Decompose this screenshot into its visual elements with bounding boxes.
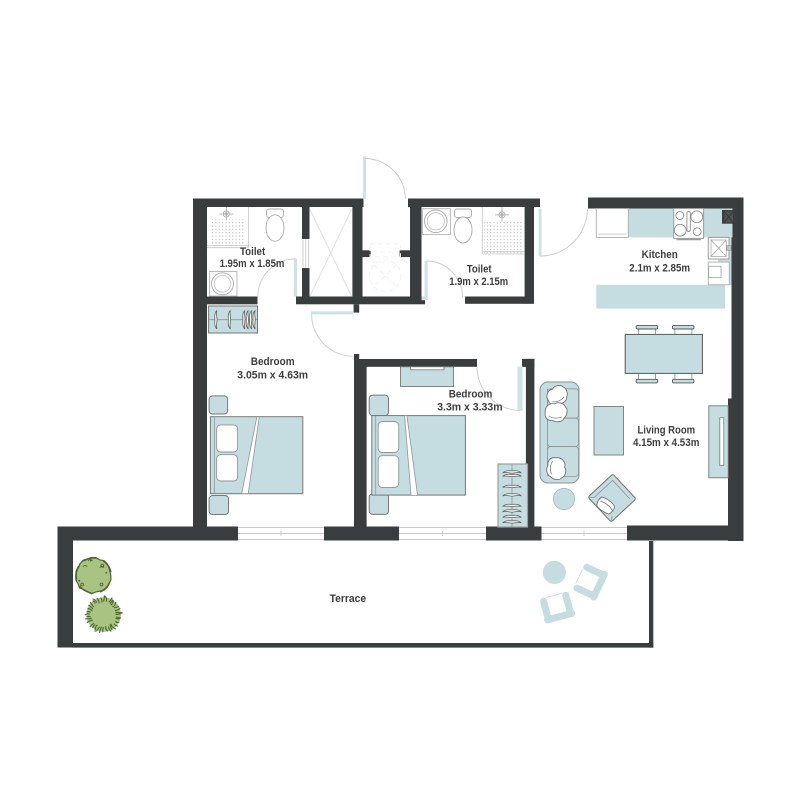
svg-text:Terrace: Terrace — [330, 593, 367, 605]
svg-text:Bedroom: Bedroom — [251, 356, 295, 368]
svg-text:4.15m x 4.53m: 4.15m x 4.53m — [633, 437, 699, 449]
svg-text:3.3m x 3.33m: 3.3m x 3.33m — [437, 402, 502, 414]
svg-text:Toilet: Toilet — [467, 264, 492, 276]
svg-text:2.1m x 2.85m: 2.1m x 2.85m — [629, 262, 690, 274]
svg-text:Toilet: Toilet — [240, 246, 266, 258]
svg-text:Kitchen: Kitchen — [642, 249, 678, 261]
svg-text:Bedroom: Bedroom — [449, 389, 493, 401]
svg-text:3.05m x 4.63m: 3.05m x 4.63m — [237, 370, 308, 382]
svg-text:1.9m x 2.15m: 1.9m x 2.15m — [449, 276, 508, 288]
svg-text:1.95m x 1.85m: 1.95m x 1.85m — [220, 258, 285, 270]
svg-text:Living Room: Living Room — [638, 424, 696, 436]
